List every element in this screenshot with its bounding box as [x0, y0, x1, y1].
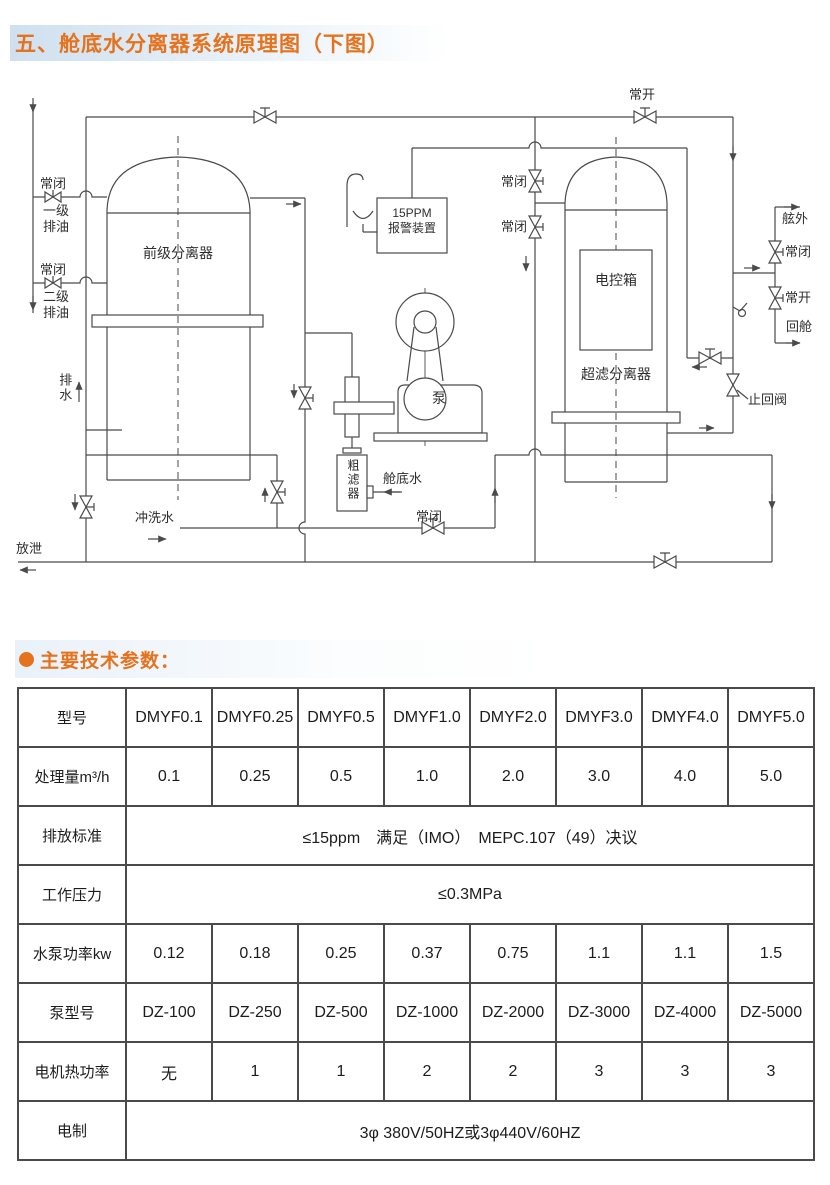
sampling-cock — [733, 303, 747, 317]
label-stage1-oil-drain: 一级排油 — [43, 203, 73, 236]
valve-recirculation — [254, 108, 276, 123]
table-row-electric-system: 电制 3φ 380V/50HZ或3φ440V/60HZ — [18, 1101, 814, 1160]
spec-cell: 1.1 — [642, 924, 728, 983]
spec-cell: 1 — [212, 1042, 298, 1101]
valve-left-drain — [80, 496, 94, 518]
label-return-to-tank: 回舱 — [786, 319, 812, 335]
spec-cell: DZ-5000 — [728, 983, 814, 1042]
spec-cell: 0.18 — [212, 924, 298, 983]
system-diagram — [0, 0, 830, 620]
spec-cell: 1.0 — [384, 747, 470, 806]
check-valve — [727, 374, 739, 396]
uf-separator-tank — [552, 137, 680, 498]
label-discharge: 放泄 — [16, 541, 42, 557]
section-heading: 主要技术参数： — [40, 646, 180, 673]
valve-bottom-drain — [654, 553, 676, 568]
label-overboard: 舷外 — [782, 211, 808, 227]
valve-sample-line — [699, 349, 721, 364]
label-bilge-water: 舱底水 — [383, 471, 422, 487]
valve-normally-open-top — [634, 108, 656, 123]
valve-normally-closed-inlet-2 — [529, 216, 543, 238]
table-row-discharge-standard: 排放标准 ≤15ppm 满足（IMO） MEPC.107（49）决议 — [18, 806, 814, 865]
label-uf-separator: 超滤分离器 — [576, 366, 656, 384]
spec-cell: 3.0 — [556, 747, 642, 806]
spec-cell: DMYF3.0 — [556, 688, 642, 747]
spec-cell: 0.75 — [470, 924, 556, 983]
label-normally-closed-4: 常闭 — [501, 219, 527, 235]
label-normally-open-return: 常开 — [785, 290, 811, 306]
label-normally-closed-2: 常闭 — [40, 262, 66, 278]
alarm-line-2: 报警装置 — [377, 221, 447, 236]
label-normally-closed-bilge: 常闭 — [416, 509, 442, 525]
table-row-capacity: 处理量m³/h 0.1 0.25 0.5 1.0 2.0 3.0 4.0 5.0 — [18, 747, 814, 806]
spec-cell: DZ-4000 — [642, 983, 728, 1042]
spec-cell: 3 — [642, 1042, 728, 1101]
table-row-pump-power: 水泵功率kw 0.12 0.18 0.25 0.37 0.75 1.1 1.1 … — [18, 924, 814, 983]
spec-cell: DZ-2000 — [470, 983, 556, 1042]
label-normally-closed-3: 常闭 — [501, 174, 527, 190]
spec-cell-merged: 3φ 380V/50HZ或3φ440V/60HZ — [126, 1101, 814, 1160]
row-label: 泵型号 — [18, 983, 126, 1042]
spec-cell: 0.25 — [212, 747, 298, 806]
spec-cell: DMYF2.0 — [470, 688, 556, 747]
spec-cell: 2 — [384, 1042, 470, 1101]
control-box-outline — [580, 250, 652, 350]
spec-cell: DZ-1000 — [384, 983, 470, 1042]
spec-cell: DZ-3000 — [556, 983, 642, 1042]
valve-normally-open-return — [769, 287, 783, 309]
valve-flush-branch — [271, 481, 285, 503]
spec-cell: 0.12 — [126, 924, 212, 983]
table-row-working-pressure: 工作压力 ≤0.3MPa — [18, 865, 814, 924]
spec-cell: 无 — [126, 1042, 212, 1101]
label-normally-closed-1: 常闭 — [40, 176, 66, 192]
spec-cell: 2 — [470, 1042, 556, 1101]
spec-cell: DMYF4.0 — [642, 688, 728, 747]
spec-cell: DMYF0.5 — [298, 688, 384, 747]
front-separator-tank — [92, 136, 263, 500]
alarm-line-1: 15PPM — [377, 206, 447, 221]
label-pre-separator: 前级分离器 — [138, 245, 218, 263]
label-alarm-device: 15PPM 报警装置 — [377, 206, 447, 236]
row-label: 处理量m³/h — [18, 747, 126, 806]
label-normally-open-top: 常开 — [629, 87, 655, 103]
section-heading-bar: 主要技术参数： — [15, 640, 555, 678]
table-row-pump-model: 泵型号 DZ-100 DZ-250 DZ-500 DZ-1000 DZ-2000… — [18, 983, 814, 1042]
spec-cell: DMYF0.25 — [212, 688, 298, 747]
spec-cell: 1.1 — [556, 924, 642, 983]
row-label: 型号 — [18, 688, 126, 747]
suction-strainer — [334, 377, 394, 453]
spec-cell: 3 — [556, 1042, 642, 1101]
spec-cell: 1.5 — [728, 924, 814, 983]
spec-cell: DMYF5.0 — [728, 688, 814, 747]
row-label: 工作压力 — [18, 865, 126, 924]
table-row-model: 型号 DMYF0.1 DMYF0.25 DMYF0.5 DMYF1.0 DMYF… — [18, 688, 814, 747]
spec-cell: 0.25 — [298, 924, 384, 983]
catalog-page: 五、舱底水分离器系统原理图（下图） — [0, 0, 830, 1185]
spec-cell: 0.5 — [298, 747, 384, 806]
spec-cell: DZ-500 — [298, 983, 384, 1042]
valve-normally-closed-overboard — [769, 241, 783, 263]
table-row-motor-heat-power: 电机热功率 无 1 1 2 2 3 3 3 — [18, 1042, 814, 1101]
spec-cell: DMYF1.0 — [384, 688, 470, 747]
spec-cell-merged: ≤0.3MPa — [126, 865, 814, 924]
spec-cell: 3 — [728, 1042, 814, 1101]
label-check-valve: 止回阀 — [748, 392, 787, 408]
pump-unit — [374, 288, 487, 446]
row-label: 排放标准 — [18, 806, 126, 865]
spec-table: 型号 DMYF0.1 DMYF0.25 DMYF0.5 DMYF1.0 DMYF… — [17, 687, 815, 1161]
label-coarse-filter: 粗滤器 — [345, 459, 360, 501]
spec-cell: 1 — [298, 1042, 384, 1101]
row-label: 电制 — [18, 1101, 126, 1160]
spec-cell: DMYF0.1 — [126, 688, 212, 747]
label-control-box: 电控箱 — [580, 272, 652, 290]
spec-cell: 5.0 — [728, 747, 814, 806]
drain-funnel-hook — [347, 174, 363, 227]
spec-cell-merged: ≤15ppm 满足（IMO） MEPC.107（49）决议 — [126, 806, 814, 865]
spec-cell: DZ-250 — [212, 983, 298, 1042]
spec-cell: 4.0 — [642, 747, 728, 806]
spec-cell: 0.37 — [384, 924, 470, 983]
label-pump: 泵 — [432, 390, 446, 408]
spec-cell: 0.1 — [126, 747, 212, 806]
valve-normally-closed-inlet-1 — [529, 170, 543, 192]
valve-front-tank-drain — [299, 387, 313, 409]
row-label: 电机热功率 — [18, 1042, 126, 1101]
section-bullet-icon — [19, 652, 34, 667]
label-stage2-oil-drain: 二级排油 — [43, 289, 73, 322]
spec-cell: DZ-100 — [126, 983, 212, 1042]
row-label: 水泵功率kw — [18, 924, 126, 983]
label-drain-water: 排水 — [56, 373, 72, 403]
spec-cell: 2.0 — [470, 747, 556, 806]
label-normally-closed-overboard: 常闭 — [785, 244, 811, 260]
label-flush-water: 冲洗水 — [135, 510, 174, 526]
